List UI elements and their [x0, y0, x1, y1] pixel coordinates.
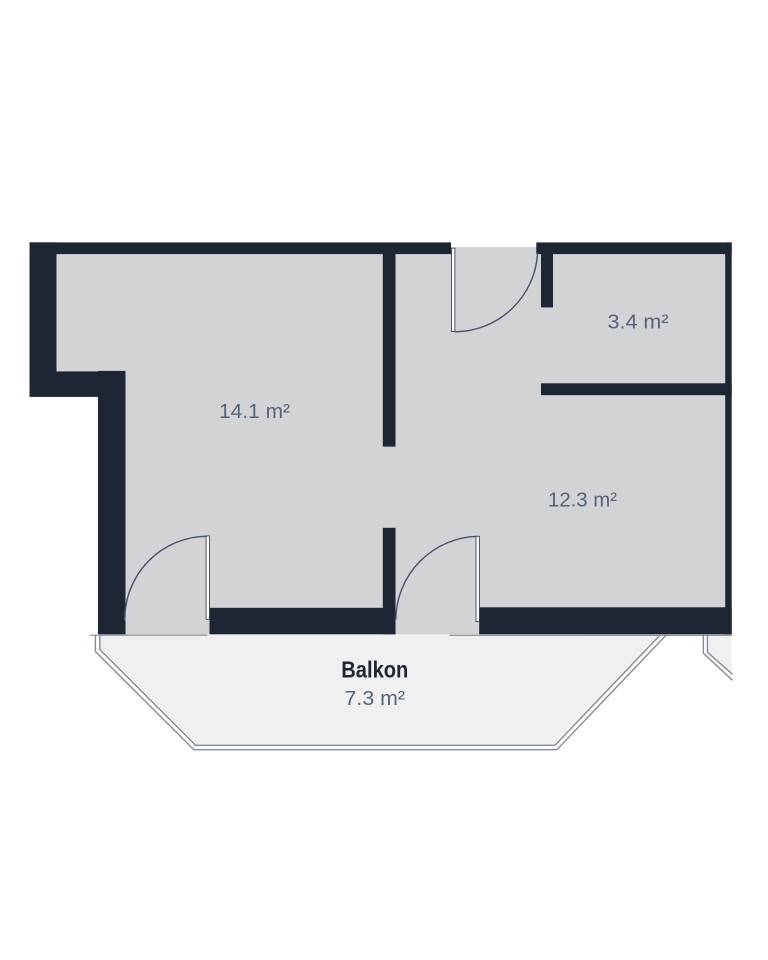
svg-text:Balkon: Balkon: [341, 657, 408, 683]
svg-text:3.4 m²: 3.4 m²: [608, 310, 669, 333]
svg-text:14.1 m²: 14.1 m²: [219, 400, 290, 423]
svg-text:12.3 m²: 12.3 m²: [548, 488, 617, 511]
svg-text:7.3 m²: 7.3 m²: [345, 687, 406, 710]
